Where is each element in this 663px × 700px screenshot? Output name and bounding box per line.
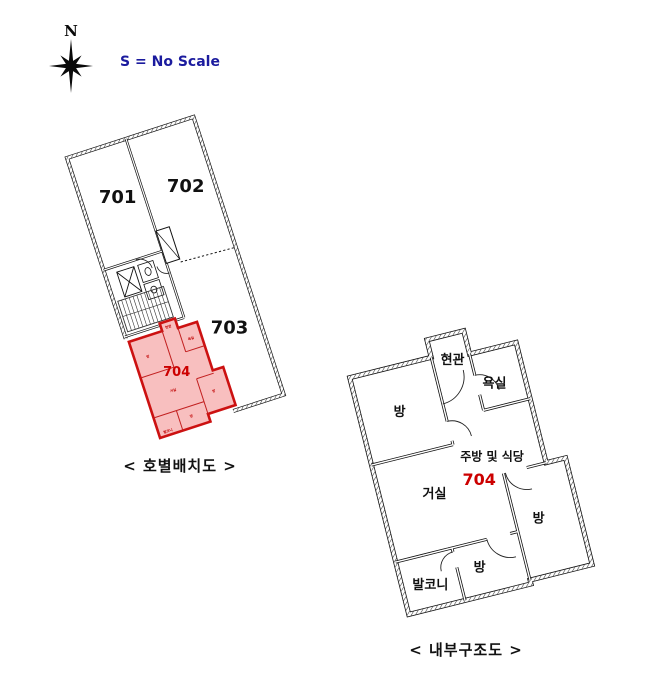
- unit-701-label: 701: [99, 187, 137, 208]
- balcony-label: 발코니: [412, 577, 448, 593]
- site-plan: 방 현관 욕실 거실 방 방 발코니 701 702 703 704: [67, 117, 285, 439]
- room-top-label: 방: [394, 404, 406, 420]
- compass-north-label: N: [64, 22, 78, 40]
- floorplan-document: N S = No Scale: [0, 0, 663, 700]
- site-plan-caption: < 호별배치도 >: [123, 457, 237, 475]
- room-bottom-label: 방: [474, 559, 486, 575]
- unit-703-label: 703: [211, 318, 249, 339]
- interior-plan-caption: < 내부구조도 >: [409, 641, 523, 659]
- interior-plan: 현관 욕실 방 주방 및 식당 704 거실 방 방 발코니: [345, 314, 593, 614]
- compass-star: [49, 39, 93, 93]
- floorplan-canvas: N S = No Scale: [0, 0, 663, 700]
- elevator-shaft: [117, 267, 142, 297]
- kitchen-label: 주방 및 식당: [460, 449, 524, 464]
- scale-note: S = No Scale: [120, 54, 220, 70]
- bath-label: 욕실: [483, 375, 507, 391]
- living-label: 거실: [423, 486, 447, 502]
- unit-704-label: 704: [163, 365, 190, 380]
- compass-rose-icon: N: [49, 22, 93, 93]
- unit-boundary-dashed: [181, 244, 236, 264]
- interior-outer-wall: [345, 314, 593, 614]
- entrance-label: 현관: [441, 352, 465, 368]
- unit-number-label: 704: [462, 470, 495, 489]
- unit-702-label: 702: [167, 176, 205, 197]
- room-right-label: 방: [533, 511, 545, 527]
